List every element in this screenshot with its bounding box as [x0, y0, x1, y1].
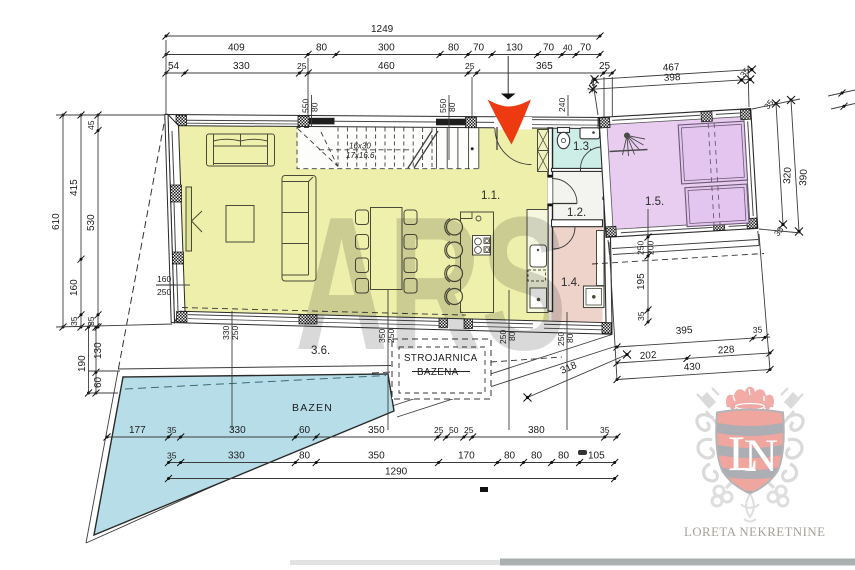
- svg-text:60: 60: [299, 425, 311, 436]
- svg-text:228: 228: [717, 344, 735, 356]
- svg-text:350: 350: [368, 451, 385, 462]
- svg-text:530: 530: [86, 214, 97, 231]
- svg-text:35: 35: [167, 425, 177, 435]
- svg-text:130: 130: [93, 342, 104, 359]
- svg-text:430: 430: [683, 361, 701, 373]
- svg-text:50: 50: [449, 425, 459, 435]
- svg-text:365: 365: [536, 61, 553, 72]
- svg-text:40: 40: [563, 43, 573, 53]
- svg-text:250: 250: [230, 326, 240, 340]
- svg-text:409: 409: [228, 43, 245, 54]
- svg-text:70: 70: [543, 43, 555, 54]
- svg-text:35: 35: [636, 311, 646, 321]
- svg-text:130: 130: [506, 43, 523, 54]
- svg-text:160: 160: [157, 274, 171, 284]
- svg-text:BAZEN: BAZEN: [292, 402, 333, 414]
- svg-text:610: 610: [51, 213, 62, 230]
- svg-text:60: 60: [93, 376, 104, 388]
- svg-text:330: 330: [228, 451, 245, 462]
- svg-text:35: 35: [69, 316, 79, 326]
- svg-text:398: 398: [664, 72, 682, 84]
- svg-text:395: 395: [675, 325, 693, 337]
- svg-text:1.2.: 1.2.: [567, 207, 586, 219]
- svg-text:190: 190: [77, 355, 88, 372]
- svg-text:250: 250: [157, 287, 171, 297]
- svg-text:35: 35: [752, 324, 762, 335]
- svg-text:1.5.: 1.5.: [645, 196, 664, 208]
- svg-text:25: 25: [434, 425, 444, 435]
- svg-text:320: 320: [782, 166, 794, 184]
- svg-text:415: 415: [69, 179, 80, 196]
- svg-text:80: 80: [299, 451, 311, 462]
- svg-text:45: 45: [86, 120, 96, 130]
- svg-text:177: 177: [129, 425, 146, 436]
- svg-text:70: 70: [580, 43, 592, 54]
- svg-text:200: 200: [646, 241, 656, 255]
- svg-text:350: 350: [368, 425, 385, 436]
- svg-text:80: 80: [504, 451, 516, 462]
- svg-text:250: 250: [636, 241, 646, 255]
- svg-text:ARS: ARS: [295, 178, 567, 390]
- svg-text:25: 25: [599, 61, 611, 72]
- svg-text:460: 460: [378, 61, 395, 72]
- svg-text:1290: 1290: [385, 467, 408, 478]
- svg-text:80: 80: [448, 43, 460, 54]
- svg-text:390: 390: [798, 168, 810, 186]
- svg-text:105: 105: [588, 451, 605, 462]
- svg-text:25: 25: [464, 425, 474, 435]
- svg-text:240: 240: [557, 98, 567, 112]
- svg-text:25: 25: [297, 61, 307, 71]
- svg-text:80: 80: [558, 451, 570, 462]
- svg-text:54: 54: [168, 61, 180, 72]
- svg-text:80: 80: [531, 451, 543, 462]
- svg-text:170: 170: [458, 451, 475, 462]
- svg-text:1249: 1249: [371, 24, 394, 35]
- svg-text:330: 330: [233, 61, 250, 72]
- svg-text:160: 160: [69, 279, 80, 296]
- svg-text:25: 25: [465, 61, 475, 71]
- svg-text:1.3.: 1.3.: [573, 141, 592, 153]
- svg-text:N: N: [744, 430, 778, 482]
- svg-text:16x30: 16x30: [349, 142, 371, 151]
- svg-text:202: 202: [639, 350, 657, 362]
- svg-text:LORETA NEKRETNINE: LORETA NEKRETNINE: [684, 525, 825, 539]
- svg-text:300: 300: [378, 43, 395, 54]
- svg-text:80: 80: [316, 43, 328, 54]
- svg-text:70: 70: [473, 43, 485, 54]
- svg-text:195: 195: [636, 273, 647, 290]
- svg-text:80: 80: [310, 102, 320, 112]
- svg-text:80: 80: [447, 102, 457, 112]
- svg-text:35: 35: [167, 451, 177, 461]
- svg-text:380: 380: [528, 425, 545, 436]
- svg-text:17x16.6: 17x16.6: [346, 151, 375, 160]
- svg-text:35: 35: [600, 425, 610, 435]
